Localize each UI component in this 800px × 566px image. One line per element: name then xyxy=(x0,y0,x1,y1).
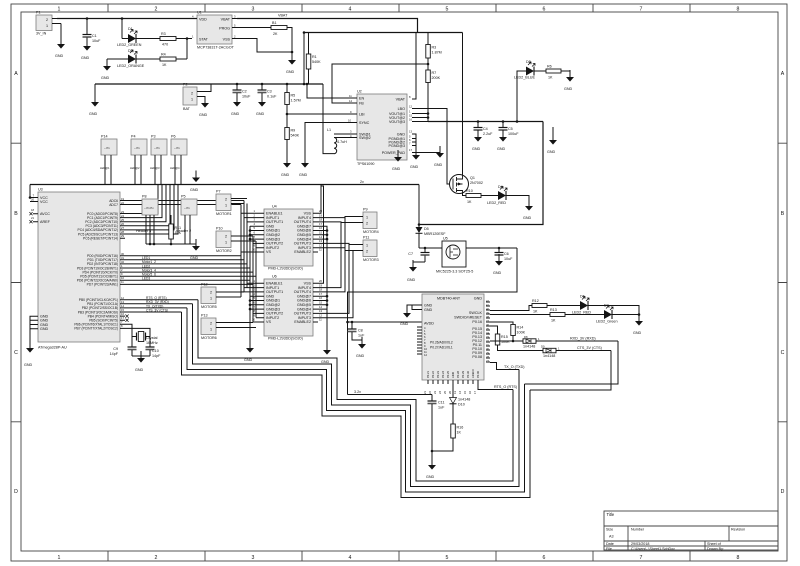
svg-text:MIC5225-3.3 SOT25-5: MIC5225-3.3 SOT25-5 xyxy=(436,270,473,274)
svg-text:P0.25: P0.25 xyxy=(446,370,450,378)
svg-text:GND: GND xyxy=(190,188,199,192)
svg-text:GND: GND xyxy=(434,163,443,167)
svg-text:MOTOR1: MOTOR1 xyxy=(216,212,232,216)
svg-text:R15: R15 xyxy=(501,335,508,339)
svg-text:1K: 1K xyxy=(467,200,472,204)
svg-text:16: 16 xyxy=(409,118,412,122)
svg-text:SYNC: SYNC xyxy=(359,121,370,125)
svg-text:D5: D5 xyxy=(424,227,429,231)
svg-text:AIN6: AIN6 xyxy=(451,372,455,378)
svg-text:29/03/2018: 29/03/2018 xyxy=(631,542,649,546)
svg-text:1: 1 xyxy=(210,328,212,332)
svg-text:B1: B1 xyxy=(272,21,277,25)
svg-text:U2: U2 xyxy=(357,90,362,94)
svg-text:18: 18 xyxy=(31,208,34,212)
svg-text:21: 21 xyxy=(31,216,34,220)
svg-text:1: 1 xyxy=(58,555,61,561)
svg-text:SWDIO/nRESET: SWDIO/nRESET xyxy=(454,316,483,320)
svg-text:LED3: LED3 xyxy=(142,277,150,281)
svg-text:GND: GND xyxy=(472,147,481,151)
svg-text:CTS_3V (CTS): CTS_3V (CTS) xyxy=(146,308,168,312)
svg-text:Title: Title xyxy=(607,512,615,517)
svg-text:C9: C9 xyxy=(113,347,118,351)
svg-text:RTS_O (RTS): RTS_O (RTS) xyxy=(494,385,517,389)
svg-text:-- Px: -- Px xyxy=(134,146,140,150)
svg-text:GND: GND xyxy=(81,56,90,60)
svg-text:2.2uF: 2.2uF xyxy=(483,132,493,136)
svg-text:GND: GND xyxy=(281,173,290,177)
svg-text:VOUT@3: VOUT@3 xyxy=(389,120,405,124)
svg-text:4: 4 xyxy=(349,7,352,13)
svg-text:D8: D8 xyxy=(524,335,528,339)
svg-text:BAT: BAT xyxy=(183,107,191,111)
svg-text:VBAT: VBAT xyxy=(221,18,231,22)
svg-text:C: C xyxy=(781,350,785,356)
svg-text:U6: U6 xyxy=(272,275,277,279)
svg-text:B: B xyxy=(14,211,18,217)
svg-text:1: 1 xyxy=(225,204,227,208)
svg-text:ADC7: ADC7 xyxy=(109,203,118,207)
svg-text:18: 18 xyxy=(319,288,322,292)
svg-text:GND: GND xyxy=(55,54,64,58)
svg-text:P1: P1 xyxy=(36,11,41,15)
svg-text:R16: R16 xyxy=(457,426,464,430)
svg-text:5: 5 xyxy=(446,7,449,13)
svg-text:2: 2 xyxy=(366,250,368,254)
svg-text:LED2_Green: LED2_Green xyxy=(596,320,618,324)
svg-text:20: 20 xyxy=(31,198,34,202)
svg-text:D7: D7 xyxy=(604,304,609,308)
svg-text:P12: P12 xyxy=(201,283,208,287)
svg-text:GND: GND xyxy=(299,173,308,177)
svg-text:D: D xyxy=(14,489,18,495)
svg-text:LED@3: LED@3 xyxy=(150,166,160,170)
svg-text:Q1: Q1 xyxy=(470,176,475,180)
svg-text:GND: GND xyxy=(356,354,365,358)
svg-text:ENABLE2: ENABLE2 xyxy=(294,250,311,254)
svg-text:20: 20 xyxy=(319,279,322,283)
svg-text:R3: R3 xyxy=(432,46,437,50)
svg-text:1n4148: 1n4148 xyxy=(543,354,555,358)
svg-text:Sheet of: Sheet of xyxy=(707,542,722,546)
svg-text:2K: 2K xyxy=(273,32,278,36)
svg-text:12: 12 xyxy=(319,313,322,317)
svg-text:VS: VS xyxy=(266,320,271,324)
svg-text:7: 7 xyxy=(640,555,643,561)
svg-text:U5: U5 xyxy=(443,237,448,241)
svg-text:GND: GND xyxy=(633,331,642,335)
svg-text:C3: C3 xyxy=(267,90,272,94)
svg-text:MOTOR3: MOTOR3 xyxy=(363,258,379,262)
svg-text:C10: C10 xyxy=(152,349,159,353)
svg-text:4: 4 xyxy=(349,555,352,561)
svg-text:P3: P3 xyxy=(151,135,156,139)
svg-text:U3: U3 xyxy=(38,188,43,192)
svg-text:6: 6 xyxy=(543,7,546,13)
svg-text:19: 19 xyxy=(319,213,322,217)
svg-text:C2: C2 xyxy=(242,90,247,94)
svg-text:D1: D1 xyxy=(128,27,133,31)
svg-text:2: 2 xyxy=(210,322,212,326)
svg-text:R14: R14 xyxy=(517,326,524,330)
svg-text:17: 17 xyxy=(409,148,412,152)
svg-text:AVCC: AVCC xyxy=(40,212,50,216)
svg-text:14pF: 14pF xyxy=(110,352,119,356)
svg-text:STAT: STAT xyxy=(199,38,209,42)
svg-text:3V_IN: 3V_IN xyxy=(36,32,47,36)
svg-text:14: 14 xyxy=(319,235,322,239)
svg-text:1: 1 xyxy=(210,297,212,301)
svg-text:LED2_BLUE: LED2_BLUE xyxy=(514,76,535,80)
svg-text:2: 2 xyxy=(210,291,212,295)
svg-text:5: 5 xyxy=(446,555,449,561)
svg-text:Crystal: Crystal xyxy=(146,336,158,340)
svg-text:P5: P5 xyxy=(181,195,186,199)
svg-text:4.7uH: 4.7uH xyxy=(337,140,347,144)
svg-text:12: 12 xyxy=(409,105,412,109)
svg-text:A: A xyxy=(781,71,785,77)
svg-text:R7: R7 xyxy=(432,71,437,75)
svg-text:C5: C5 xyxy=(508,127,513,131)
svg-text:1: 1 xyxy=(366,244,368,248)
svg-text:100uF: 100uF xyxy=(508,132,519,136)
svg-text:LED2_ORANGE: LED2_ORANGE xyxy=(117,64,145,68)
svg-text:100K: 100K xyxy=(517,331,526,335)
svg-text:MDBT40-ANT: MDBT40-ANT xyxy=(437,297,461,301)
svg-text:D2: D2 xyxy=(128,49,133,53)
svg-text:R5: R5 xyxy=(291,94,296,98)
svg-text:ATmega328P-AU: ATmega328P-AU xyxy=(38,346,67,350)
svg-text:2N7002: 2N7002 xyxy=(470,181,483,185)
svg-text:GND: GND xyxy=(286,70,295,74)
svg-text:2: 2 xyxy=(366,222,368,226)
svg-text:P0.29: P0.29 xyxy=(461,370,465,378)
svg-text:P13: P13 xyxy=(201,314,208,318)
svg-text:SWCLK: SWCLK xyxy=(469,311,483,315)
svg-text:P0.08: P0.08 xyxy=(472,355,482,359)
svg-text:GND: GND xyxy=(397,133,406,137)
svg-text:U1: U1 xyxy=(197,11,202,15)
svg-text:23: 23 xyxy=(433,391,437,394)
svg-text:P0.21: P0.21 xyxy=(426,370,430,378)
svg-text:3: 3 xyxy=(252,7,255,13)
svg-text:AREF: AREF xyxy=(40,220,51,224)
svg-text:13: 13 xyxy=(319,309,322,313)
svg-text:15: 15 xyxy=(319,301,322,305)
svg-text:P0.26/AD0/XL2: P0.26/AD0/XL2 xyxy=(430,341,453,345)
svg-text:GND: GND xyxy=(321,360,330,364)
svg-text:Header 3: Header 3 xyxy=(136,229,151,233)
svg-text:470: 470 xyxy=(162,43,168,47)
svg-text:P0.23: P0.23 xyxy=(436,370,440,378)
svg-text:14pF: 14pF xyxy=(152,354,161,358)
svg-text:C: C xyxy=(14,350,18,356)
svg-text:Size: Size xyxy=(606,528,613,532)
svg-text:10: 10 xyxy=(252,248,255,252)
svg-text:D4: D4 xyxy=(498,185,503,189)
svg-text:16: 16 xyxy=(121,312,124,316)
svg-text:R13: R13 xyxy=(550,308,557,312)
svg-text:MBR120ESF: MBR120ESF xyxy=(424,232,446,236)
svg-text:C1: C1 xyxy=(92,34,97,38)
svg-text:MOTOR6: MOTOR6 xyxy=(201,336,217,340)
svg-text:1n4148: 1n4148 xyxy=(523,345,535,349)
svg-text:GND: GND xyxy=(474,297,483,301)
svg-text:PB7 (PCINT7/XTAL2/TOSC2): PB7 (PCINT7/XTAL2/TOSC2) xyxy=(74,327,118,331)
svg-text:P4: P4 xyxy=(131,135,136,139)
svg-text:Date: Date xyxy=(606,542,614,546)
svg-text:13: 13 xyxy=(319,239,322,243)
svg-text:TX_O (TXD): TX_O (TXD) xyxy=(504,365,525,369)
svg-text:R6: R6 xyxy=(547,65,552,69)
svg-text:GND: GND xyxy=(400,322,409,326)
svg-text:P10: P10 xyxy=(216,227,223,231)
svg-text:1.57M: 1.57M xyxy=(291,99,301,103)
svg-text:26: 26 xyxy=(448,391,452,394)
svg-text:PD7 (PCINT23/AIN1): PD7 (PCINT23/AIN1) xyxy=(87,283,118,287)
svg-text:MOTOR5: MOTOR5 xyxy=(201,305,217,309)
svg-text:GND: GND xyxy=(24,363,33,367)
svg-text:10uF: 10uF xyxy=(92,39,101,43)
svg-text:1uF: 1uF xyxy=(358,334,365,338)
svg-text:GND: GND xyxy=(231,112,240,116)
svg-text:12: 12 xyxy=(424,353,427,357)
svg-text:10: 10 xyxy=(348,119,351,123)
svg-text:GND: GND xyxy=(135,368,144,372)
svg-text:13: 13 xyxy=(453,391,457,394)
svg-text:P0.00: P0.00 xyxy=(476,370,480,378)
svg-text:1: 1 xyxy=(58,7,61,13)
svg-text:0.1uF: 0.1uF xyxy=(267,95,277,99)
svg-text:16: 16 xyxy=(468,391,472,394)
svg-text:29: 29 xyxy=(121,234,124,238)
svg-text:GND: GND xyxy=(424,308,433,312)
svg-text:15: 15 xyxy=(463,391,467,394)
svg-text:C8: C8 xyxy=(358,329,363,333)
svg-text:Drawn By:: Drawn By: xyxy=(707,547,724,551)
svg-text:GND: GND xyxy=(392,167,401,171)
svg-text:C6: C6 xyxy=(504,252,509,256)
svg-text:GND: GND xyxy=(410,165,419,169)
svg-text:PC6 (RESET/PCINT14): PC6 (RESET/PCINT14) xyxy=(83,237,118,241)
svg-text:GND: GND xyxy=(89,112,98,116)
svg-text:R9: R9 xyxy=(291,129,296,133)
svg-text:P7: P7 xyxy=(216,190,221,194)
svg-text:3: 3 xyxy=(252,555,255,561)
svg-text:AREF0: AREF0 xyxy=(471,369,475,378)
svg-text:C:\Users\..\Sheet1.SchDoc: C:\Users\..\Sheet1.SchDoc xyxy=(631,547,675,551)
svg-text:21: 21 xyxy=(423,391,427,394)
svg-text:17: 17 xyxy=(319,292,322,296)
svg-text:A3: A3 xyxy=(609,535,614,539)
svg-text:D: D xyxy=(781,489,785,495)
svg-text:PMD-L293DD(SO20): PMD-L293DD(SO20) xyxy=(268,267,303,271)
svg-text:GND: GND xyxy=(424,304,433,308)
svg-text:28: 28 xyxy=(121,230,124,234)
svg-text:R3: R3 xyxy=(161,32,166,36)
svg-text:L1: L1 xyxy=(327,128,331,132)
svg-text:GND: GND xyxy=(40,327,49,331)
svg-text:1: 1 xyxy=(366,216,368,220)
svg-text:16MHz: 16MHz xyxy=(146,341,158,345)
svg-text:GND: GND xyxy=(407,278,416,282)
svg-text:VDD: VDD xyxy=(199,18,207,22)
svg-text:CTS_3V (CTS): CTS_3V (CTS) xyxy=(577,346,602,350)
svg-text:MOTOR4: MOTOR4 xyxy=(363,230,379,234)
svg-text:12: 12 xyxy=(319,243,322,247)
svg-text:C11: C11 xyxy=(438,401,445,405)
svg-text:GND: GND xyxy=(199,113,208,117)
svg-text:1K: 1K xyxy=(533,310,538,314)
svg-text:EN: EN xyxy=(359,97,364,101)
svg-text:SW@2: SW@2 xyxy=(359,136,371,140)
svg-text:540K: 540K xyxy=(291,134,300,138)
svg-text:D6: D6 xyxy=(580,295,585,299)
svg-text:1: 1 xyxy=(46,24,48,28)
svg-text:LED2_GREEN: LED2_GREEN xyxy=(117,43,142,47)
svg-text:ENABLE2: ENABLE2 xyxy=(294,320,311,324)
svg-text:10K: 10K xyxy=(175,231,182,235)
svg-text:16: 16 xyxy=(319,226,322,230)
svg-text:R12: R12 xyxy=(532,299,539,303)
svg-text:6: 6 xyxy=(543,555,546,561)
svg-text:TPS61090: TPS61090 xyxy=(357,162,374,166)
svg-text:10: 10 xyxy=(252,318,255,322)
svg-text:VSS: VSS xyxy=(223,38,231,42)
svg-text:2v: 2v xyxy=(360,180,364,184)
svg-text:LED@1: LED@1 xyxy=(100,166,110,170)
svg-text:POWER_PAD: POWER_PAD xyxy=(382,151,406,155)
svg-text:D10: D10 xyxy=(458,403,465,407)
svg-text:GND: GND xyxy=(493,271,502,275)
svg-text:15: 15 xyxy=(121,308,124,312)
svg-text:MCP73831T-2ACGOT: MCP73831T-2ACGOT xyxy=(197,46,235,50)
svg-text:P0.27/AD1/XL1: P0.27/AD1/XL1 xyxy=(430,346,453,350)
svg-text:GND: GND xyxy=(244,358,253,362)
svg-text:D9: D9 xyxy=(541,345,545,349)
svg-text:PGND@3: PGND@3 xyxy=(389,144,405,148)
svg-text:GND: GND xyxy=(426,475,435,479)
svg-text:1K: 1K xyxy=(162,63,167,67)
svg-text:D3: D3 xyxy=(526,60,531,64)
svg-text:16: 16 xyxy=(319,296,322,300)
svg-text:LBO: LBO xyxy=(398,107,406,111)
svg-text:AVDD: AVDD xyxy=(424,322,434,326)
svg-text:17: 17 xyxy=(473,391,477,394)
svg-text:MOTOR2: MOTOR2 xyxy=(216,249,232,253)
svg-text:P0.22: P0.22 xyxy=(431,370,435,378)
svg-text:1: 1 xyxy=(225,241,227,245)
svg-text:LED@2: LED@2 xyxy=(130,166,140,170)
svg-text:-- Px: -- Px xyxy=(184,206,190,210)
svg-text:P0.16: P0.16 xyxy=(472,320,482,324)
svg-text:15: 15 xyxy=(319,231,322,235)
svg-text:VCC: VCC xyxy=(40,200,48,204)
svg-text:1.87M: 1.87M xyxy=(432,51,442,55)
svg-text:200K: 200K xyxy=(432,76,441,80)
svg-text:LED2_RED: LED2_RED xyxy=(487,201,506,205)
svg-text:15: 15 xyxy=(409,114,412,118)
svg-text:7: 7 xyxy=(640,7,643,13)
svg-text:13: 13 xyxy=(409,130,412,134)
svg-text:VS: VS xyxy=(266,250,271,254)
svg-text:14: 14 xyxy=(319,305,322,309)
svg-text:P0.24: P0.24 xyxy=(441,370,445,378)
svg-text:P0.28: P0.28 xyxy=(456,370,460,378)
svg-text:1K: 1K xyxy=(548,76,553,80)
svg-text:18: 18 xyxy=(319,218,322,222)
svg-text:2: 2 xyxy=(225,198,227,202)
svg-text:LED@4: LED@4 xyxy=(170,166,180,170)
svg-text:P9: P9 xyxy=(363,208,368,212)
svg-text:R4: R4 xyxy=(161,53,166,57)
svg-text:P11: P11 xyxy=(363,236,369,240)
svg-text:PMD-L293DD(SO20): PMD-L293DD(SO20) xyxy=(268,337,303,341)
svg-text:C7: C7 xyxy=(408,252,413,256)
svg-text:GND: GND xyxy=(256,112,265,116)
svg-text:LBI: LBI xyxy=(359,113,365,117)
svg-text:19: 19 xyxy=(319,283,322,287)
svg-text:22: 22 xyxy=(428,391,432,394)
svg-text:R11: R11 xyxy=(175,226,182,230)
svg-text:VBAT: VBAT xyxy=(278,14,288,18)
svg-text:24: 24 xyxy=(438,391,442,394)
svg-text:1n4148: 1n4148 xyxy=(458,398,470,402)
svg-text:PROG: PROG xyxy=(219,27,230,31)
svg-text:2: 2 xyxy=(46,18,48,22)
svg-text:8: 8 xyxy=(737,7,740,13)
svg-text:U4: U4 xyxy=(272,205,277,209)
svg-text:GND: GND xyxy=(523,216,532,220)
svg-text:25: 25 xyxy=(443,391,447,394)
svg-text:A: A xyxy=(14,71,18,77)
svg-text:P0.30: P0.30 xyxy=(466,370,470,378)
svg-text:2: 2 xyxy=(225,235,227,239)
svg-text:R10: R10 xyxy=(466,189,473,193)
svg-text:3.2v: 3.2v xyxy=(354,390,361,394)
svg-text:FB: FB xyxy=(359,102,364,106)
svg-text:-- Px: -- Px xyxy=(104,146,110,150)
svg-text:2: 2 xyxy=(191,92,193,96)
svg-text:GND: GND xyxy=(564,87,573,91)
svg-text:P14: P14 xyxy=(101,135,108,139)
svg-text:LED2_RED: LED2_RED xyxy=(572,311,591,315)
svg-text:GND: GND xyxy=(101,76,110,80)
svg-text:540K: 540K xyxy=(312,60,321,64)
svg-text:P6: P6 xyxy=(171,135,176,139)
svg-text:17: 17 xyxy=(319,222,322,226)
svg-text:File: File xyxy=(606,547,612,551)
svg-text:1uF: 1uF xyxy=(438,406,445,410)
svg-text:VBAT: VBAT xyxy=(396,98,406,102)
svg-text:-- Px: -- Px xyxy=(154,146,160,150)
svg-text:1: 1 xyxy=(191,98,193,102)
svg-text:GND: GND xyxy=(497,147,506,151)
svg-text:Number: Number xyxy=(631,528,645,532)
svg-text:1K: 1K xyxy=(551,319,556,323)
svg-text:-- Px Px: -- Px Px xyxy=(144,206,154,210)
svg-text:14: 14 xyxy=(349,99,352,103)
svg-text:10uF: 10uF xyxy=(242,95,251,99)
svg-text:GND: GND xyxy=(547,150,556,154)
svg-text:-- Px: -- Px xyxy=(174,146,180,150)
svg-text:14: 14 xyxy=(458,391,462,394)
svg-text:B: B xyxy=(781,211,785,217)
svg-text:8: 8 xyxy=(737,555,740,561)
svg-text:R1: R1 xyxy=(312,55,317,59)
svg-text:10uF: 10uF xyxy=(504,257,513,261)
svg-text:Revision: Revision xyxy=(731,528,745,532)
